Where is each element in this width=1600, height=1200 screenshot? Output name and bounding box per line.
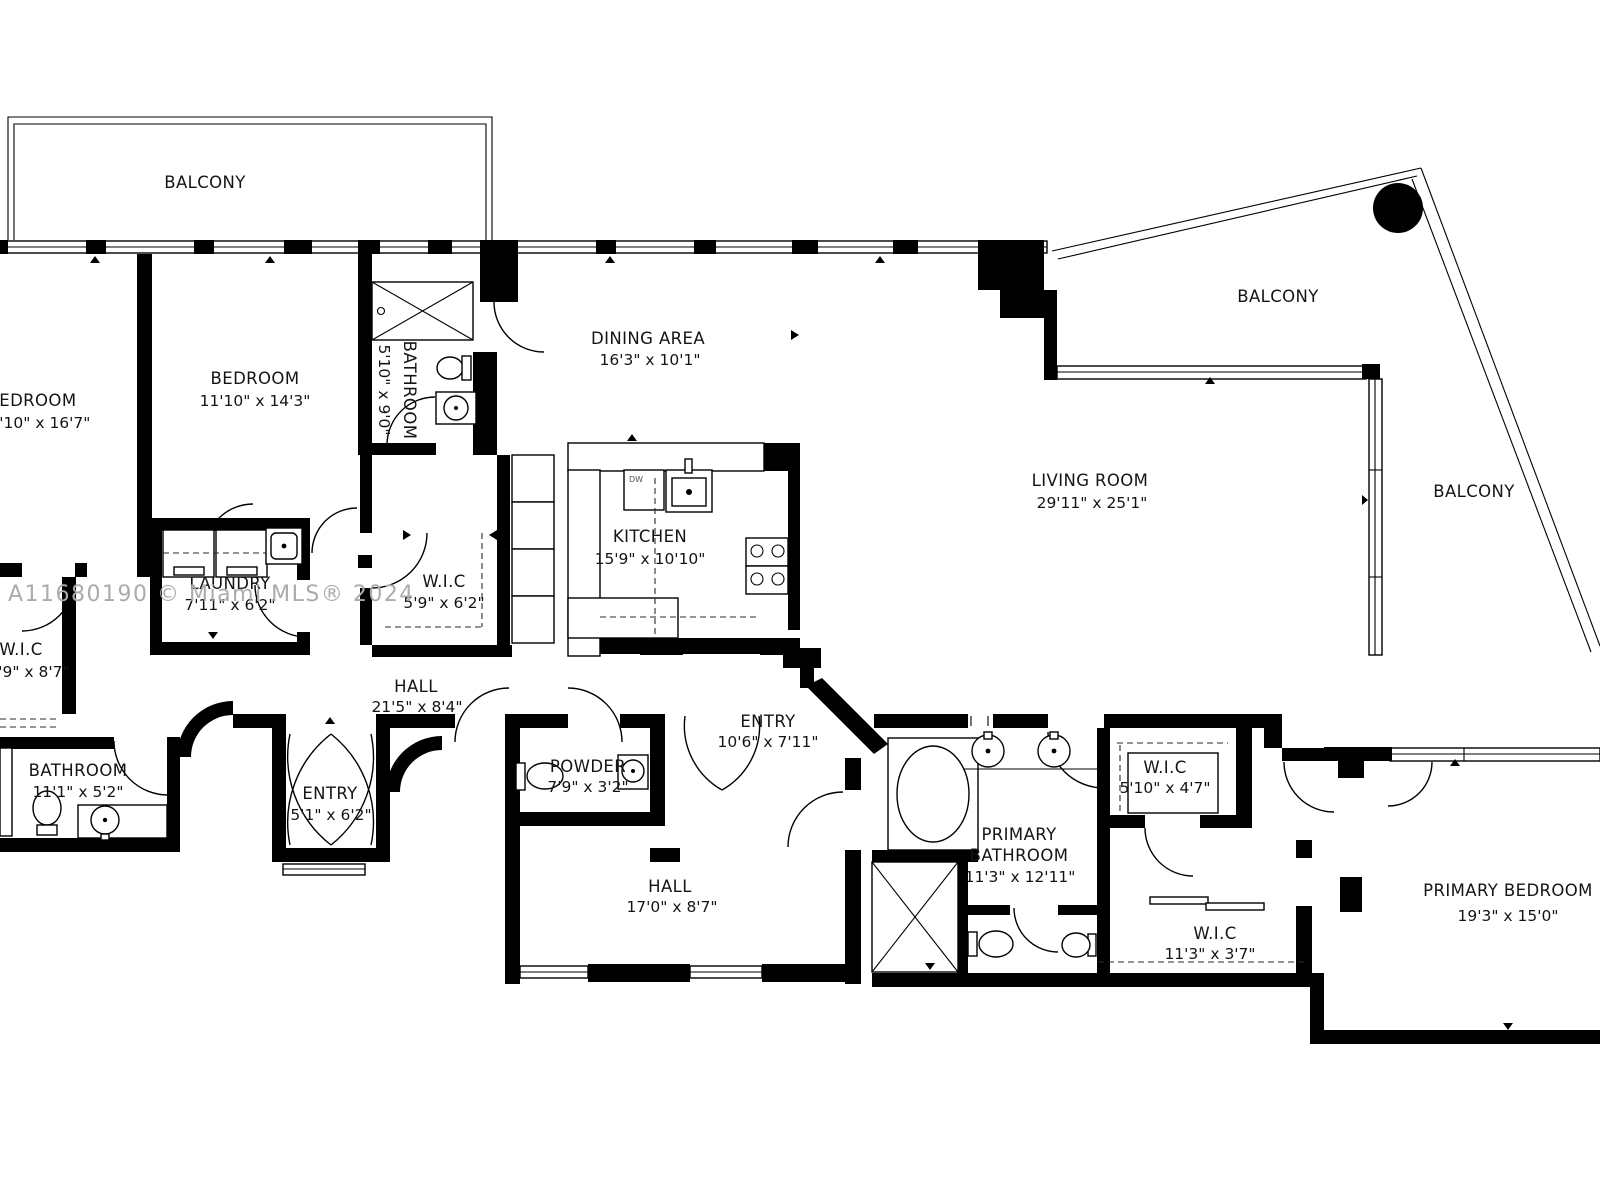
room-dims-wic-left: 5'9" x 8'7" — [0, 663, 70, 681]
room-label-wic-primary-small: W.I.C — [1143, 758, 1186, 777]
room-label-living: LIVING ROOM — [1032, 471, 1149, 490]
balcony-column — [1373, 183, 1423, 233]
room-label-bathroom-left: BATHROOM — [29, 761, 128, 780]
floor-plan-page: DW — [0, 0, 1600, 1200]
dishwasher-label: DW — [629, 475, 643, 484]
sink-small — [436, 392, 476, 424]
room-dims-kitchen: 15'9" x 10'10" — [595, 550, 706, 568]
room-label-primary-bath-2: BATHROOM — [970, 846, 1069, 865]
floor-plan-drawing: DW — [0, 0, 1600, 1200]
room-dims-dining: 16'3" x 10'1" — [600, 351, 701, 369]
room-dims-bathroom-small: 5'10" x 9'0" — [375, 344, 393, 435]
dishwasher: DW — [624, 470, 664, 510]
primary-sinks — [963, 732, 1097, 769]
room-dims-entry-small: 5'1" x 6'2" — [290, 806, 371, 824]
primary-shower — [872, 862, 958, 972]
primary-toilet — [968, 931, 1013, 957]
room-label-wic-hall: W.I.C — [422, 572, 465, 591]
room-dims-entry-main: 10'6" x 7'11" — [718, 733, 819, 751]
room-label-bathroom-small: BATHROOM — [400, 341, 419, 440]
room-dims-bedroom-left: 11'10" x 16'7" — [0, 414, 90, 432]
room-label-primary-bedroom: PRIMARY BEDROOM — [1423, 881, 1593, 900]
room-dims-bedroom: 11'10" x 14'3" — [200, 392, 311, 410]
room-dims-primary-bedroom: 19'3" x 15'0" — [1458, 907, 1559, 925]
room-dims-wic-hall: 5'9" x 6'2" — [403, 594, 484, 612]
primary-bidet — [1062, 933, 1096, 957]
room-label-entry-main: ENTRY — [740, 712, 796, 731]
room-label-bedroom-left: BEDROOM — [0, 391, 76, 410]
hall-cabinets — [512, 455, 554, 643]
room-dims-wic-primary-long: 11'3" x 3'7" — [1164, 945, 1255, 963]
range-stove — [746, 538, 788, 594]
room-label-balcony-right: BALCONY — [1433, 482, 1515, 501]
shower-small — [372, 282, 473, 340]
room-label-powder: POWDER — [550, 757, 626, 776]
room-dims-living: 29'11" x 25'1" — [1037, 494, 1148, 512]
toilet-small — [437, 356, 471, 380]
room-label-balcony-top-left: BALCONY — [164, 173, 246, 192]
room-label-bedroom: BEDROOM — [211, 369, 300, 388]
laundry-sink — [266, 528, 302, 564]
room-label-balcony-top-right: BALCONY — [1237, 287, 1319, 306]
sliding-doors — [1150, 897, 1264, 910]
room-label-kitchen: KITCHEN — [613, 527, 687, 546]
room-label-primary-bath-1: PRIMARY — [981, 825, 1057, 844]
room-dims-hall-lower: 17'0" x 8'7" — [626, 898, 717, 916]
washer-dryer — [163, 530, 267, 577]
room-dims-powder: 7'9" x 3'2" — [547, 778, 628, 796]
room-label-hall-upper: HALL — [394, 677, 438, 696]
room-dims-bathroom-left: 11'1" x 5'2" — [32, 783, 123, 801]
room-label-wic-left: W.I.C — [0, 640, 43, 659]
mls-watermark: A11680190 © Miami MLS® 2024 — [8, 582, 415, 607]
room-label-dining: DINING AREA — [591, 329, 705, 348]
walls-layer — [0, 240, 1600, 1044]
room-label-wic-primary-long: W.I.C — [1193, 924, 1236, 943]
room-label-hall-lower: HALL — [648, 877, 692, 896]
room-dims-hall-upper: 21'5" x 8'4" — [371, 698, 462, 716]
room-dims-primary-bath: 11'3" x 12'11" — [965, 868, 1076, 886]
room-label-entry-small: ENTRY — [302, 784, 358, 803]
primary-tub — [888, 738, 978, 850]
room-dims-wic-primary-small: 5'10" x 4'7" — [1119, 779, 1210, 797]
